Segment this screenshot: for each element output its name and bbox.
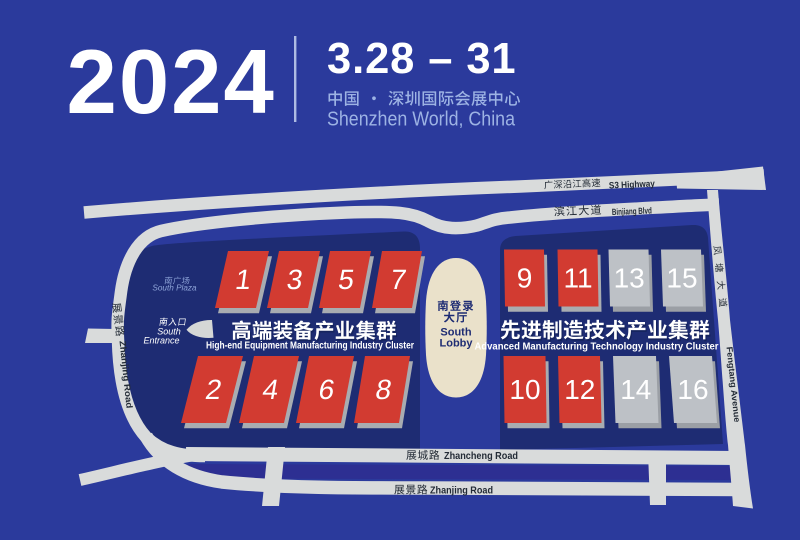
svg-text:South Plaza: South Plaza <box>152 284 197 293</box>
svg-text:Binjiang Blvd: Binjiang Blvd <box>612 205 652 217</box>
svg-text:2024: 2024 <box>67 32 276 133</box>
svg-text:10: 10 <box>509 374 540 405</box>
svg-text:11: 11 <box>563 263 592 294</box>
svg-text:Zhanjing Road: Zhanjing Road <box>430 486 493 497</box>
svg-text:13: 13 <box>614 263 645 294</box>
svg-text:High-end Equipment Manufacturi: High-end Equipment Manufacturing Industr… <box>206 341 414 352</box>
svg-text:9: 9 <box>517 263 533 294</box>
svg-text:Entrance: Entrance <box>143 336 179 346</box>
svg-text:Shenzhen World, China: Shenzhen World, China <box>327 109 516 131</box>
svg-text:Zhancheng Road: Zhancheng Road <box>444 451 518 462</box>
svg-text:Lobby: Lobby <box>440 338 474 350</box>
svg-text:12: 12 <box>564 374 595 405</box>
svg-text:14: 14 <box>620 374 651 405</box>
svg-text:16: 16 <box>677 374 708 405</box>
svg-text:15: 15 <box>666 263 697 294</box>
svg-text:Advanced Manufacturing Technol: Advanced Manufacturing Technology Indust… <box>475 342 719 353</box>
svg-text:S3 Highway: S3 Highway <box>609 178 656 190</box>
svg-text:3.28 – 31: 3.28 – 31 <box>327 35 517 83</box>
